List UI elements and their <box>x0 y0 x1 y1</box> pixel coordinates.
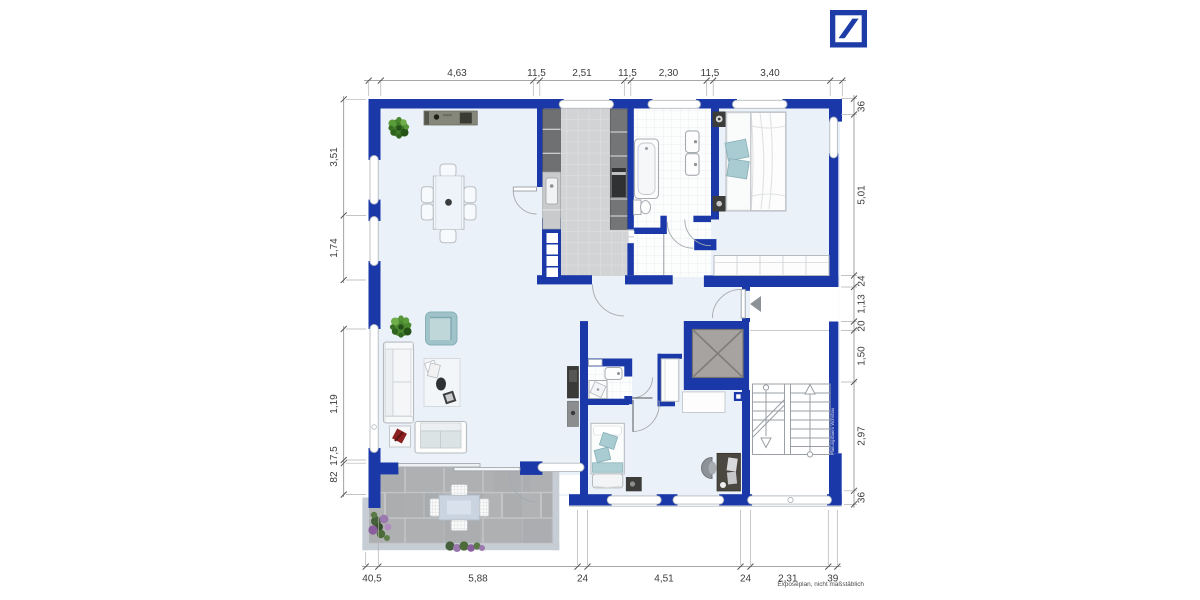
svg-text:1,19: 1,19 <box>329 394 340 414</box>
svg-text:2,30: 2,30 <box>659 68 679 79</box>
svg-text:1,50: 1,50 <box>857 346 868 366</box>
svg-text:Planungsbuero Wohnbau: Planungsbuero Wohnbau <box>830 407 835 455</box>
svg-text:3,40: 3,40 <box>760 68 780 79</box>
svg-text:3,51: 3,51 <box>329 147 340 167</box>
svg-text:36: 36 <box>857 101 868 113</box>
svg-text:2,97: 2,97 <box>857 426 868 446</box>
svg-text:Exposéplan, nicht maßstäblich: Exposéplan, nicht maßstäblich <box>777 581 864 588</box>
svg-text:82: 82 <box>329 471 340 483</box>
svg-text:24: 24 <box>577 574 589 585</box>
svg-text:40,5: 40,5 <box>362 574 382 585</box>
svg-text:5,88: 5,88 <box>468 574 488 585</box>
svg-text:4,63: 4,63 <box>447 68 467 79</box>
svg-text:17,5: 17,5 <box>329 446 340 466</box>
svg-text:24: 24 <box>857 275 868 287</box>
svg-text:4,51: 4,51 <box>654 574 674 585</box>
svg-text:5,01: 5,01 <box>857 185 868 205</box>
svg-text:36: 36 <box>857 492 868 504</box>
svg-text:1,13: 1,13 <box>857 294 868 314</box>
svg-text:11,5: 11,5 <box>618 68 637 79</box>
svg-text:11,5: 11,5 <box>701 68 720 79</box>
svg-text:24: 24 <box>740 574 752 585</box>
svg-text:1,74: 1,74 <box>329 238 340 258</box>
svg-text:20: 20 <box>857 320 868 332</box>
svg-text:2,51: 2,51 <box>572 68 592 79</box>
svg-text:11,5: 11,5 <box>527 68 546 79</box>
